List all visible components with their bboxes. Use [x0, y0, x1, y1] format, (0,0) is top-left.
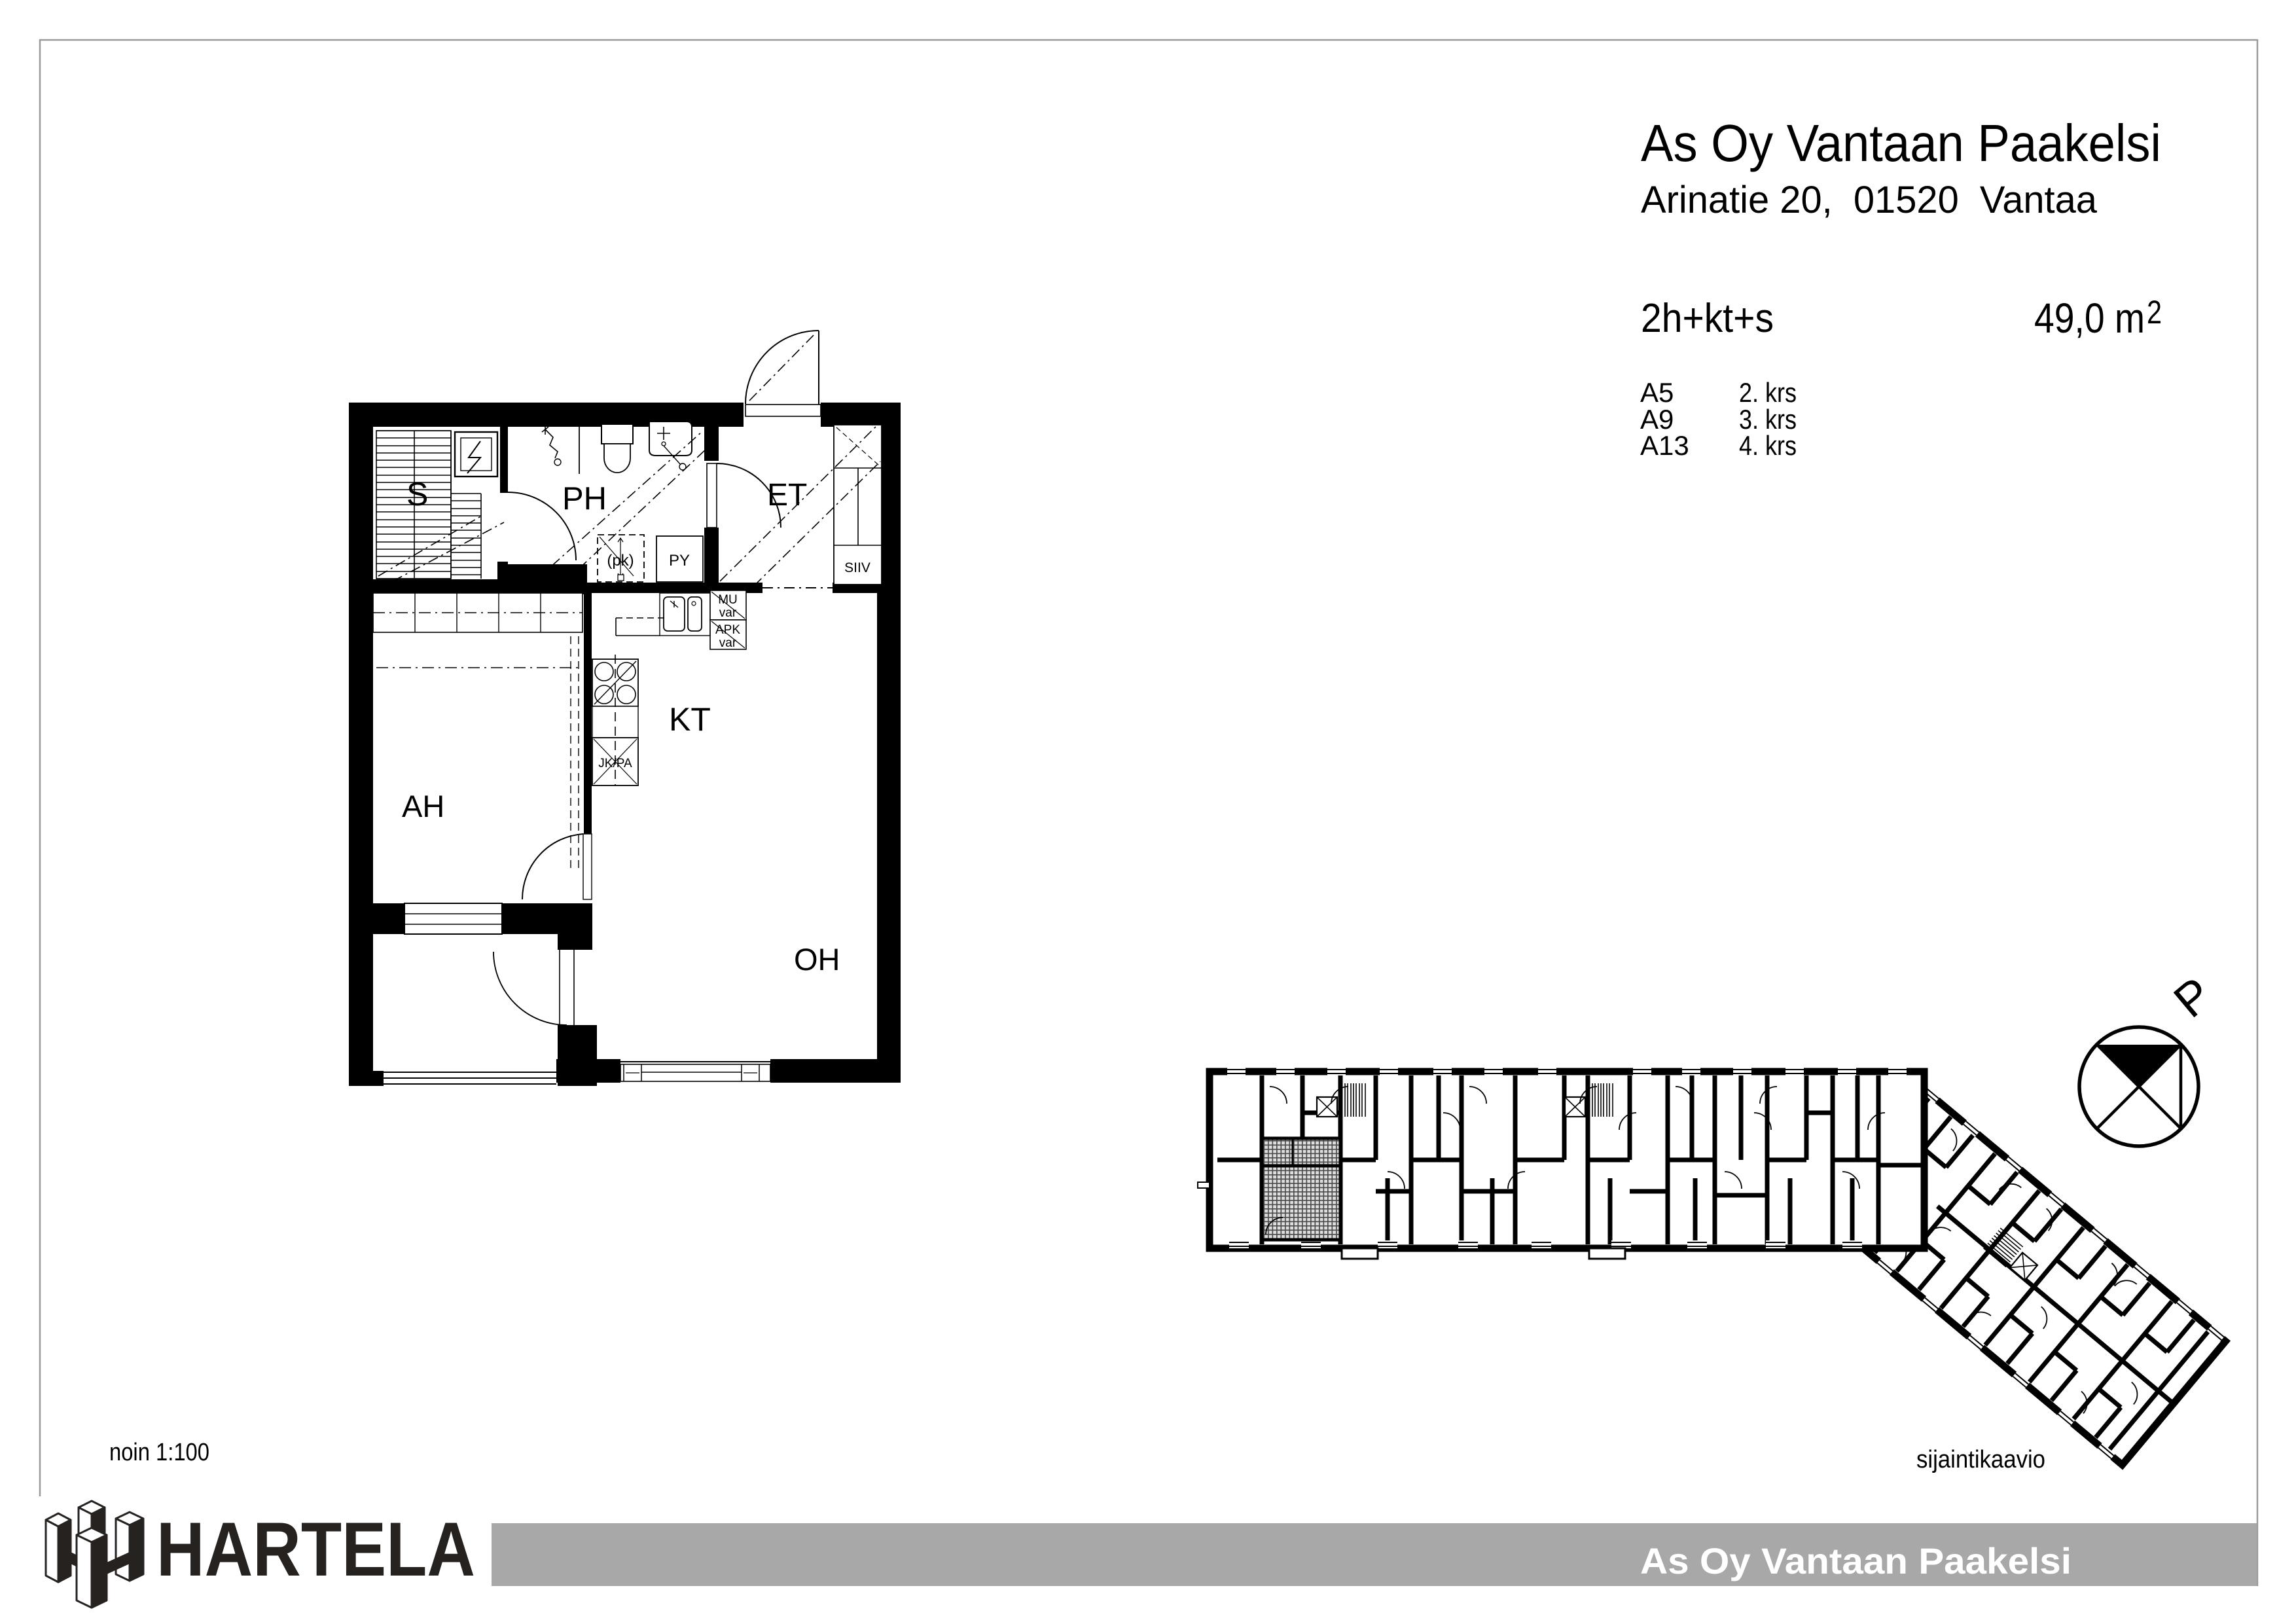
svg-text:A5: A5	[1640, 377, 1674, 408]
svg-text:OH: OH	[794, 942, 840, 977]
svg-text:var: var	[719, 606, 737, 620]
svg-text:AH: AH	[402, 789, 444, 823]
svg-text:APK: APK	[715, 623, 740, 637]
svg-text:SIIV: SIIV	[844, 560, 870, 575]
svg-text:2h+kt+s: 2h+kt+s	[1641, 296, 1774, 341]
svg-text:As Oy Vantaan Paakelsi: As Oy Vantaan Paakelsi	[1640, 1540, 2072, 1581]
svg-text:PH: PH	[562, 481, 607, 516]
svg-text:Arinatie 20, 01520 Vantaa: Arinatie 20, 01520 Vantaa	[1641, 179, 2098, 221]
svg-text:HARTELA: HARTELA	[156, 1506, 475, 1592]
svg-text:As Oy Vantaan Paakelsi: As Oy Vantaan Paakelsi	[1641, 114, 2161, 172]
svg-text:2: 2	[2147, 294, 2162, 331]
svg-text:var: var	[719, 636, 737, 650]
svg-text:A13: A13	[1640, 430, 1689, 461]
svg-text:49,0 m: 49,0 m	[2034, 295, 2145, 342]
svg-text:sijaintikaavio: sijaintikaavio	[1916, 1446, 2045, 1473]
svg-text:KT: KT	[669, 701, 711, 738]
svg-text:noin 1:100: noin 1:100	[109, 1439, 209, 1466]
svg-text:ET: ET	[767, 478, 807, 513]
svg-text:PY: PY	[669, 552, 690, 569]
svg-text:4. krs: 4. krs	[1739, 430, 1797, 461]
svg-text:S: S	[406, 476, 428, 513]
svg-text:2. krs: 2. krs	[1739, 377, 1797, 408]
svg-text:(pk): (pk)	[607, 552, 634, 569]
svg-text:MU: MU	[718, 593, 738, 607]
